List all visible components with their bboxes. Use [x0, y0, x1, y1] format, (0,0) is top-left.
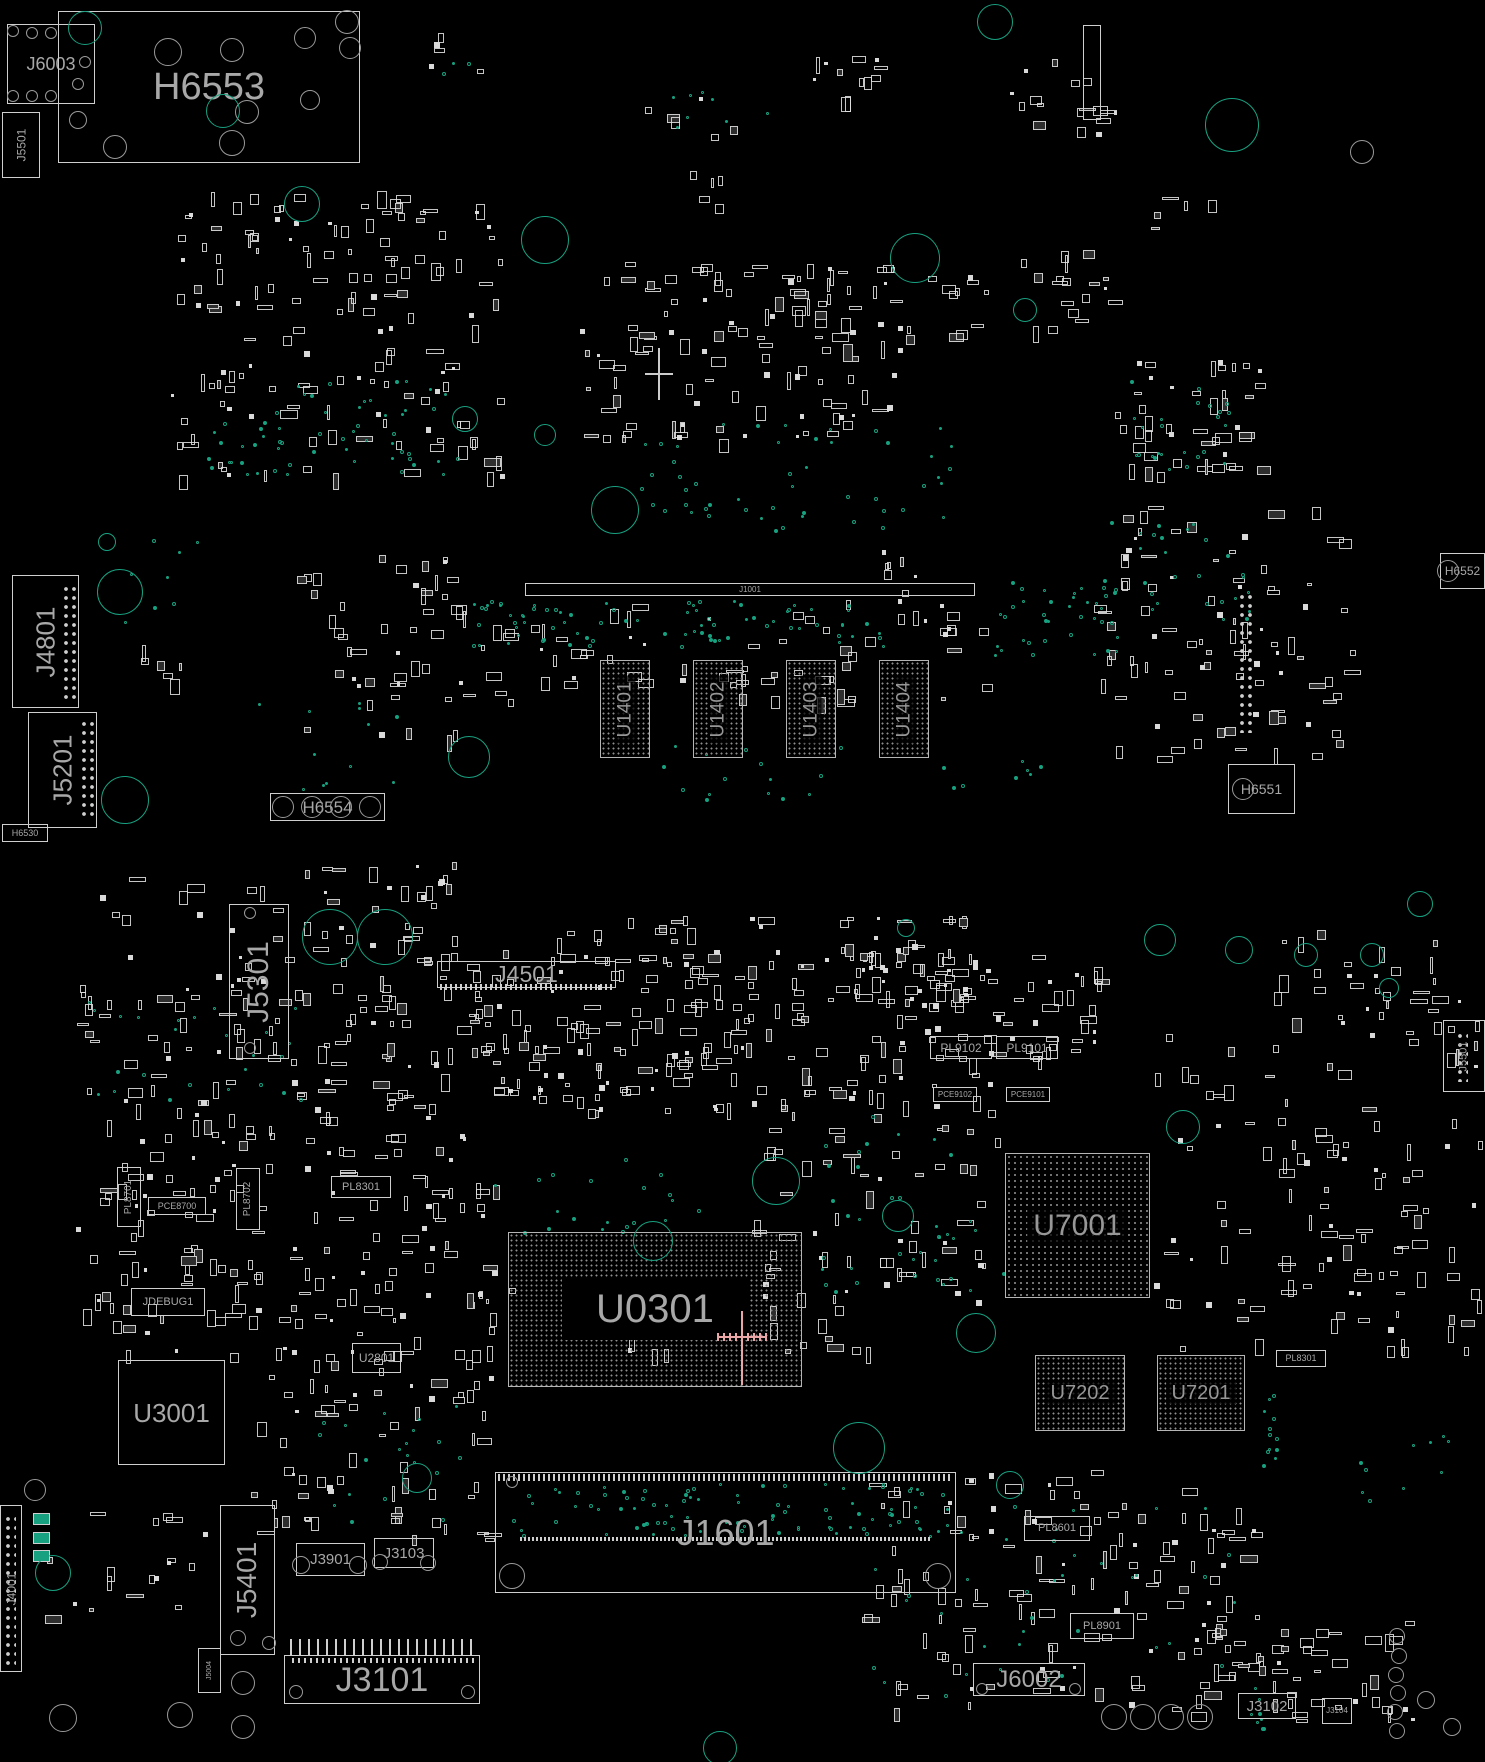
via	[965, 1673, 968, 1676]
smd-part	[1123, 515, 1134, 523]
smd-part	[341, 226, 350, 238]
component-u1402[interactable]: U1402	[693, 660, 743, 758]
smd-pad	[100, 895, 106, 901]
via	[437, 460, 440, 463]
smd-part	[1103, 1551, 1107, 1568]
smd-pad	[955, 1291, 960, 1296]
component-j4001[interactable]: J4001	[0, 1505, 22, 1672]
smd-part	[443, 382, 449, 392]
component-u7201[interactable]: U7201	[1157, 1355, 1245, 1431]
via	[116, 1070, 120, 1074]
smd-part	[1091, 1578, 1094, 1590]
smd-part	[1171, 529, 1181, 534]
component-j1601[interactable]: J1601	[495, 1472, 956, 1593]
smd-pad	[292, 1080, 298, 1086]
smd-pad	[387, 886, 392, 891]
via	[1152, 533, 1156, 537]
via	[827, 1164, 831, 1168]
via	[405, 1442, 408, 1445]
component-u1403[interactable]: U1403	[786, 660, 836, 758]
smd-part	[177, 442, 182, 451]
smd-part	[1255, 1615, 1261, 1620]
component-pl8701[interactable]: PL8701	[117, 1167, 141, 1227]
smd-part	[379, 555, 386, 563]
smd-part	[1217, 1616, 1227, 1622]
via-ring	[1144, 924, 1176, 956]
smd-part	[792, 1112, 796, 1121]
via	[777, 441, 780, 444]
smd-part	[498, 259, 503, 266]
smd-part	[869, 1090, 874, 1104]
via	[324, 411, 327, 414]
component-label: PCE8700	[158, 1202, 197, 1211]
via	[671, 1199, 674, 1202]
smd-part	[239, 1141, 248, 1151]
smd-part	[878, 999, 896, 1003]
smd-pad	[426, 1293, 431, 1298]
smd-part	[401, 886, 409, 901]
crosshair-tick	[765, 1333, 767, 1341]
smd-part	[474, 1482, 479, 1493]
via	[664, 1219, 667, 1222]
component-connector[interactable]	[1083, 25, 1101, 120]
smd-part	[220, 401, 225, 408]
smd-part	[1292, 1140, 1296, 1151]
smd-part	[1180, 1346, 1185, 1353]
smd-part	[716, 1000, 723, 1010]
mounting-hole	[1069, 1683, 1081, 1695]
via	[1000, 649, 1003, 652]
smd-pad	[877, 917, 880, 920]
component-label: J5201	[50, 735, 76, 806]
via	[966, 1578, 969, 1581]
smd-part	[1077, 127, 1086, 138]
via	[246, 473, 249, 476]
component-pl9101[interactable]: PL9101	[996, 1036, 1058, 1059]
via-ring	[357, 909, 413, 965]
via	[282, 1091, 286, 1095]
smd-pad	[1277, 1661, 1281, 1665]
via	[177, 1019, 180, 1022]
smd-part	[805, 1090, 817, 1095]
smd-part	[584, 434, 599, 438]
smd-part	[1075, 319, 1089, 323]
smd-part	[803, 431, 809, 435]
via	[322, 1421, 326, 1425]
via	[1031, 653, 1035, 657]
component-pce9101[interactable]: PCE9101	[1006, 1087, 1050, 1102]
mounting-hole	[372, 1554, 388, 1570]
smd-part	[1269, 711, 1279, 725]
boardview-canvas[interactable]: J6003H6553J5501J4801J5201H6530H6554J1001…	[0, 0, 1485, 1762]
smd-part	[246, 1126, 253, 1135]
smd-part	[557, 938, 563, 954]
smd-part	[614, 377, 617, 389]
component-j5401[interactable]: J5401	[220, 1505, 275, 1655]
via	[898, 1252, 902, 1256]
via	[545, 608, 549, 612]
via	[210, 466, 214, 470]
smd-part	[887, 562, 891, 569]
smd-pad	[544, 1073, 549, 1078]
component-pce8700[interactable]: PCE8700	[148, 1197, 206, 1215]
smd-part	[443, 557, 449, 563]
component-jdebug1[interactable]: JDEBUG1	[131, 1288, 205, 1316]
via	[708, 503, 712, 507]
via	[472, 644, 476, 648]
via	[949, 1153, 953, 1157]
smd-part	[884, 570, 892, 580]
smd-pad	[849, 1096, 854, 1101]
component-pce9102[interactable]: PCE9102	[933, 1087, 977, 1102]
smd-part	[531, 625, 540, 633]
component-j4501[interactable]: J4501	[437, 961, 616, 988]
smd-part	[102, 1292, 111, 1302]
via	[1275, 1448, 1279, 1452]
smd-part	[1217, 1201, 1227, 1209]
via	[744, 748, 748, 752]
component-j5501[interactable]: J5501	[1443, 1020, 1485, 1092]
component-u3001[interactable]: U3001	[118, 1360, 225, 1465]
smd-part	[852, 1347, 861, 1355]
via	[1043, 639, 1047, 643]
smd-part	[953, 989, 960, 1003]
smd-part	[1358, 1318, 1370, 1324]
smd-pad	[1126, 548, 1131, 553]
smd-part	[495, 691, 508, 696]
smd-part	[571, 1023, 578, 1031]
smd-part	[402, 1020, 411, 1028]
smd-part	[1401, 1339, 1405, 1356]
smd-pad	[435, 389, 440, 394]
smd-part	[391, 695, 399, 701]
smd-part	[1160, 1556, 1175, 1562]
smd-part	[463, 611, 466, 629]
smd-part	[361, 204, 369, 210]
component-j6002[interactable]: J6002	[973, 1663, 1085, 1696]
smd-part	[802, 1161, 812, 1177]
smd-part	[487, 1346, 493, 1361]
via	[739, 603, 743, 607]
via	[124, 621, 127, 624]
via	[188, 1083, 192, 1087]
smd-part	[1213, 559, 1219, 562]
via	[507, 642, 510, 645]
smd-part	[1178, 1652, 1185, 1660]
smd-part	[443, 875, 448, 884]
via	[651, 503, 655, 507]
smd-part	[477, 1204, 486, 1212]
smd-part	[685, 980, 693, 989]
smd-part	[363, 308, 375, 316]
smd-pad	[315, 1107, 321, 1113]
component-j3102[interactable]: J3102	[1238, 1693, 1296, 1719]
smd-part	[732, 391, 738, 403]
smd-part	[337, 1476, 344, 1485]
smd-pad	[487, 225, 492, 230]
smd-part	[482, 1411, 486, 1421]
smd-part	[224, 1170, 232, 1176]
smd-part	[877, 1093, 885, 1109]
smd-part	[899, 1046, 907, 1052]
smd-part	[410, 627, 417, 633]
component-j5501[interactable]: J5501	[2, 112, 40, 178]
smd-pad	[862, 968, 866, 972]
via	[1272, 1394, 1276, 1398]
component-pl8601[interactable]: PL8601	[1024, 1516, 1090, 1541]
smd-pad	[378, 329, 383, 334]
smd-part	[349, 1453, 356, 1468]
smd-part	[1208, 200, 1217, 213]
via	[178, 551, 181, 554]
smd-part	[647, 281, 655, 291]
smd-part	[1307, 583, 1313, 586]
smd-part	[1074, 1491, 1080, 1499]
smd-part	[905, 986, 919, 995]
via	[1014, 776, 1018, 780]
via	[1204, 538, 1208, 542]
component-label: J6002	[996, 1668, 1061, 1692]
component-label: J3901	[310, 1552, 351, 1567]
smd-part	[1036, 1556, 1042, 1574]
via	[1168, 1642, 1171, 1645]
smd-part	[909, 1241, 917, 1253]
smd-part	[733, 1004, 742, 1011]
smd-part	[748, 966, 758, 980]
smd-part	[564, 681, 579, 689]
smd-pad	[1242, 534, 1248, 540]
smd-pad	[124, 1099, 129, 1104]
component-j5004[interactable]: J5004	[198, 1648, 221, 1693]
component-pl8901[interactable]: PL8901	[1070, 1613, 1134, 1639]
smd-part	[871, 75, 880, 82]
smd-pad	[884, 1282, 890, 1288]
via	[1130, 380, 1134, 384]
smd-part	[1314, 987, 1326, 994]
via	[745, 618, 748, 621]
via-ring	[35, 1555, 71, 1591]
smd-pad	[680, 678, 685, 683]
smd-part	[716, 426, 724, 433]
smd-part	[157, 995, 173, 1003]
smd-pad	[800, 414, 805, 419]
via	[547, 1227, 551, 1231]
via	[676, 445, 679, 448]
smd-pad	[147, 1174, 153, 1180]
smd-part	[318, 1089, 336, 1093]
component-j5301[interactable]: J5301	[229, 904, 289, 1059]
via	[591, 639, 595, 643]
smd-part	[665, 1108, 672, 1114]
smd-pad	[1306, 722, 1311, 727]
smd-pad	[643, 643, 646, 646]
via	[1102, 586, 1106, 590]
smd-pad	[196, 303, 201, 308]
smd-pad	[1010, 92, 1014, 96]
smd-part	[476, 204, 485, 220]
smd-part	[1255, 680, 1264, 686]
smd-part	[842, 662, 851, 671]
component-pl9102[interactable]: PL9102	[930, 1036, 992, 1059]
component-u2801[interactable]: U2801	[352, 1343, 401, 1373]
via	[294, 1007, 297, 1010]
smd-part	[332, 868, 346, 872]
smd-pad	[429, 1396, 435, 1402]
smd-part	[632, 1008, 640, 1016]
smd-pad	[166, 1056, 171, 1061]
smd-part	[347, 1034, 351, 1042]
via	[815, 623, 819, 627]
component-label: J3101	[336, 1663, 429, 1697]
smd-part	[1220, 1629, 1227, 1635]
smd-part	[1461, 1320, 1476, 1326]
via	[406, 1454, 409, 1457]
smd-part	[1056, 1477, 1073, 1486]
smd-pad	[900, 1041, 904, 1045]
component-j5201[interactable]: J5201	[28, 712, 97, 828]
smd-part	[1194, 739, 1202, 749]
via	[718, 639, 721, 642]
smd-part	[1410, 999, 1428, 1004]
smd-part	[757, 1086, 767, 1095]
smd-part	[314, 1212, 318, 1224]
via	[356, 424, 360, 428]
via	[467, 62, 471, 66]
smd-part	[1273, 1681, 1276, 1693]
mounting-hole	[230, 1630, 246, 1646]
component-j1001[interactable]: J1001	[525, 583, 975, 596]
via	[881, 526, 885, 530]
smd-part	[1170, 1300, 1181, 1310]
component-j3104[interactable]: J3104	[1322, 1698, 1352, 1724]
via	[113, 1090, 116, 1093]
component-pl8301[interactable]: PL8301	[331, 1176, 391, 1198]
component-pl8301[interactable]: PL8301	[1276, 1350, 1326, 1367]
component-u1401[interactable]: U1401	[600, 660, 650, 758]
smd-part	[1103, 277, 1109, 282]
mounting-hole	[1437, 560, 1459, 582]
smd-part	[230, 1269, 238, 1277]
smd-part	[835, 1306, 844, 1316]
smd-pad	[1075, 973, 1079, 977]
smd-part	[445, 697, 452, 702]
mounting-hole	[7, 90, 19, 102]
smd-part	[1233, 618, 1236, 625]
smd-part	[225, 386, 235, 393]
via	[946, 1233, 949, 1236]
via	[983, 1645, 986, 1648]
smd-part	[1141, 606, 1151, 617]
via	[585, 636, 589, 640]
smd-pad	[222, 1141, 225, 1144]
smd-part	[406, 728, 413, 741]
smd-pad	[750, 917, 755, 922]
smd-part	[433, 1203, 439, 1219]
smd-part	[1225, 727, 1236, 737]
smd-part	[446, 884, 451, 895]
smd-pad	[1134, 537, 1137, 540]
via	[662, 765, 666, 769]
via	[509, 614, 512, 617]
smd-pad	[1279, 671, 1283, 675]
smd-part	[900, 557, 904, 567]
via	[672, 96, 675, 99]
smd-part	[1391, 967, 1401, 976]
smd-pad	[935, 1026, 941, 1032]
smd-part	[350, 1289, 356, 1306]
component-j4801[interactable]: J4801	[12, 575, 79, 708]
smd-part	[805, 616, 815, 623]
mounting-hole	[301, 796, 323, 818]
via	[1268, 1427, 1272, 1431]
smd-part	[452, 862, 457, 871]
smd-pad	[558, 1073, 564, 1079]
smd-pad	[325, 1079, 330, 1084]
via	[612, 608, 616, 612]
smd-pad	[1374, 1168, 1377, 1171]
via	[97, 1093, 100, 1096]
component-u1404[interactable]: U1404	[879, 660, 929, 758]
smd-pad	[914, 575, 917, 578]
via	[808, 793, 811, 796]
smd-part	[259, 1206, 267, 1211]
via-ring	[448, 736, 490, 778]
smd-part	[1033, 121, 1045, 131]
smd-pad	[426, 427, 432, 433]
smd-pad	[578, 1049, 584, 1055]
smd-part	[874, 1114, 882, 1122]
smd-part	[434, 48, 445, 53]
component-j3101[interactable]: J3101	[284, 1655, 480, 1704]
via	[934, 1259, 937, 1262]
mounting-hole	[1443, 1718, 1461, 1736]
smd-part	[1428, 1009, 1439, 1012]
smd-part	[971, 324, 984, 328]
smd-pad	[1260, 628, 1263, 631]
smd-part	[690, 171, 697, 180]
smd-pad	[1190, 1258, 1194, 1262]
smd-part	[711, 357, 727, 367]
via	[230, 461, 233, 464]
smd-pad	[73, 1602, 77, 1606]
via	[273, 469, 277, 473]
smd-pad	[597, 354, 600, 357]
smd-part	[670, 928, 676, 934]
component-pl8702[interactable]: PL8702	[236, 1168, 260, 1230]
component-u7202[interactable]: U7202	[1035, 1355, 1125, 1431]
smd-part	[215, 1317, 226, 1326]
smd-pad	[481, 1214, 485, 1218]
via	[1025, 1590, 1029, 1594]
smd-part	[179, 891, 189, 905]
smd-part	[1250, 1306, 1265, 1312]
smd-part	[973, 1603, 988, 1607]
smd-part	[993, 1012, 1005, 1015]
component-h6530[interactable]: H6530	[2, 824, 48, 842]
smd-part	[941, 697, 946, 701]
smd-part	[1477, 1300, 1482, 1314]
via	[542, 638, 546, 642]
via	[1005, 1538, 1008, 1541]
smd-part	[1370, 1675, 1379, 1690]
via	[259, 427, 263, 431]
smd-part	[486, 1299, 489, 1305]
smd-part	[795, 310, 803, 327]
component-u7001[interactable]: U7001	[1005, 1153, 1150, 1298]
smd-part	[892, 1151, 900, 1159]
smd-part	[726, 289, 731, 297]
smd-part	[1279, 975, 1289, 992]
